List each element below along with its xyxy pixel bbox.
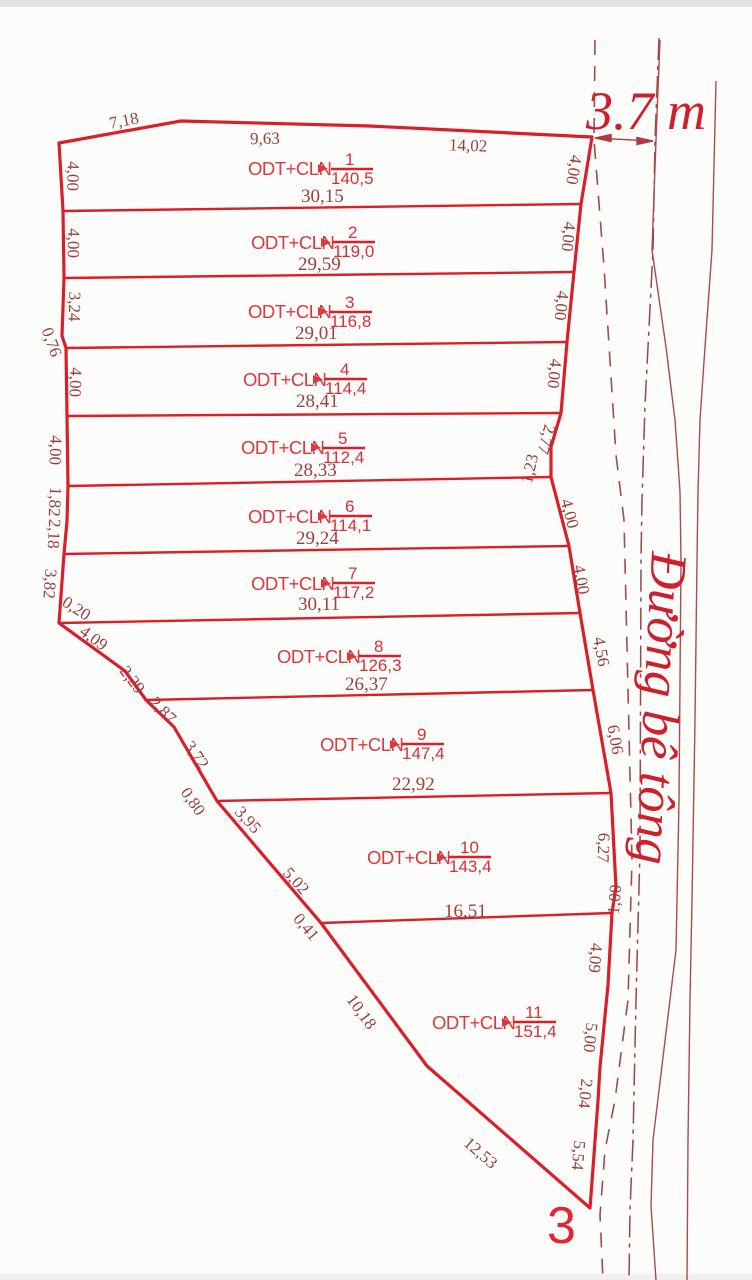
svg-text:28,41: 28,41 (296, 391, 339, 412)
svg-text:4,00: 4,00 (543, 358, 565, 390)
svg-text:126,3: 126,3 (359, 656, 402, 675)
svg-text:6: 6 (345, 497, 354, 516)
svg-text:4,00: 4,00 (557, 221, 579, 253)
svg-text:9: 9 (417, 725, 426, 744)
svg-text:4,00: 4,00 (45, 435, 65, 465)
svg-text:151,4: 151,4 (514, 1022, 557, 1041)
svg-text:3: 3 (547, 1197, 576, 1255)
svg-text:5: 5 (338, 429, 347, 448)
svg-text:4,09: 4,09 (585, 942, 607, 973)
svg-text:4,00: 4,00 (63, 161, 83, 191)
svg-text:11: 11 (525, 1003, 543, 1022)
svg-text:4,00: 4,00 (65, 367, 85, 397)
svg-text:1: 1 (345, 150, 354, 169)
svg-text:10: 10 (460, 838, 479, 857)
svg-text:22,92: 22,92 (392, 774, 435, 795)
svg-text:7: 7 (348, 564, 357, 583)
svg-text:16,51: 16,51 (444, 901, 487, 922)
svg-text:1,82: 1,82 (45, 486, 66, 517)
svg-text:3.7: 3.7 (585, 81, 656, 141)
svg-text:28,33: 28,33 (294, 460, 337, 481)
svg-text:4: 4 (340, 360, 349, 379)
svg-text:5,00: 5,00 (579, 1022, 601, 1054)
svg-text:29,01: 29,01 (295, 323, 338, 344)
svg-text:3,82: 3,82 (39, 568, 60, 599)
svg-text:9,63: 9,63 (250, 129, 280, 149)
svg-text:2,18: 2,18 (44, 518, 65, 549)
svg-text:2: 2 (348, 223, 357, 242)
svg-text:3: 3 (345, 293, 354, 312)
svg-text:147,4: 147,4 (402, 744, 445, 763)
svg-text:3,24: 3,24 (65, 292, 85, 323)
svg-text:8: 8 (374, 637, 383, 656)
svg-text:4,00: 4,00 (550, 290, 572, 322)
svg-text:29,24: 29,24 (296, 528, 339, 549)
svg-text:m: m (667, 81, 706, 141)
svg-text:26,37: 26,37 (345, 674, 388, 695)
svg-text:30,11: 30,11 (298, 594, 340, 615)
svg-text:143,4: 143,4 (449, 857, 492, 876)
svg-text:5,54: 5,54 (568, 1140, 590, 1172)
svg-text:30,15: 30,15 (301, 186, 344, 207)
svg-text:4,00: 4,00 (64, 228, 84, 258)
svg-text:14,02: 14,02 (449, 135, 488, 155)
svg-text:2,04: 2,04 (574, 1078, 596, 1110)
svg-text:6,27: 6,27 (593, 832, 613, 863)
svg-text:1,00: 1,00 (604, 884, 626, 915)
svg-text:29,59: 29,59 (298, 254, 341, 275)
